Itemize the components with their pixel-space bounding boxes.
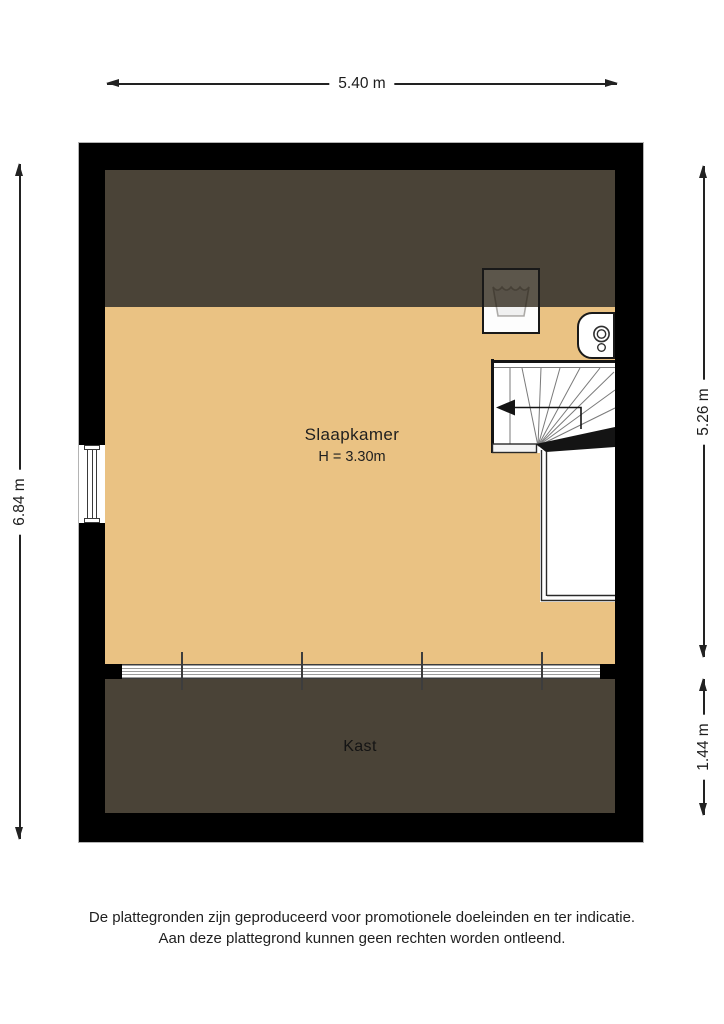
closet-doors	[122, 664, 600, 679]
arrow-left-icon	[106, 79, 119, 87]
arrow-down-icon	[15, 827, 23, 840]
floorplan-page: 5.40 m 6.84 m 5.26 m 1.44 m	[0, 0, 724, 1024]
room-name: Slaapkamer	[242, 425, 462, 445]
closet-door-tick	[301, 652, 303, 690]
dimension-left: 6.84 m	[19, 164, 21, 839]
boiler-icon	[577, 312, 615, 359]
dimension-top-label: 5.40 m	[329, 75, 394, 93]
window-icon	[79, 445, 105, 523]
dimension-right-lower-label: 1.44 m	[695, 714, 713, 779]
room-height-label: H = 3.30m	[242, 449, 462, 465]
arrow-up-icon	[699, 165, 707, 178]
arrow-right-icon	[605, 79, 618, 87]
disclaimer-line2: Aan deze plattegrond kunnen geen rechten…	[0, 928, 724, 949]
dimension-left-label: 6.84 m	[11, 469, 29, 534]
closet-wall-stub	[105, 664, 122, 679]
closet-door-tick	[541, 652, 543, 690]
dimension-top: 5.40 m	[107, 75, 617, 93]
arrow-up-icon	[699, 678, 707, 691]
window-sill	[84, 518, 100, 523]
dimension-right-upper-label: 5.26 m	[695, 379, 713, 444]
washing-machine-icon	[482, 268, 540, 334]
closet-door-tick	[421, 652, 423, 690]
window-glass-line	[92, 449, 93, 519]
building-interior	[105, 170, 615, 813]
bedroom-floor	[105, 307, 615, 665]
arrow-down-icon	[699, 803, 707, 816]
disclaimer: De plattegronden zijn geproduceerd voor …	[0, 907, 724, 949]
bedroom-label: Slaapkamer H = 3.30m	[242, 425, 462, 465]
dimension-right-upper: 5.26 m	[703, 166, 705, 657]
disclaimer-line1: De plattegronden zijn geproduceerd voor …	[0, 907, 724, 928]
arrow-up-icon	[15, 163, 23, 176]
closet-label: Kast	[105, 738, 615, 756]
closet-door-tick	[181, 652, 183, 690]
closet-wall-stub	[600, 664, 615, 679]
dimension-right-lower: 1.44 m	[703, 679, 705, 815]
arrow-down-icon	[699, 645, 707, 658]
window-sill	[84, 445, 100, 450]
window-frame	[87, 448, 97, 520]
